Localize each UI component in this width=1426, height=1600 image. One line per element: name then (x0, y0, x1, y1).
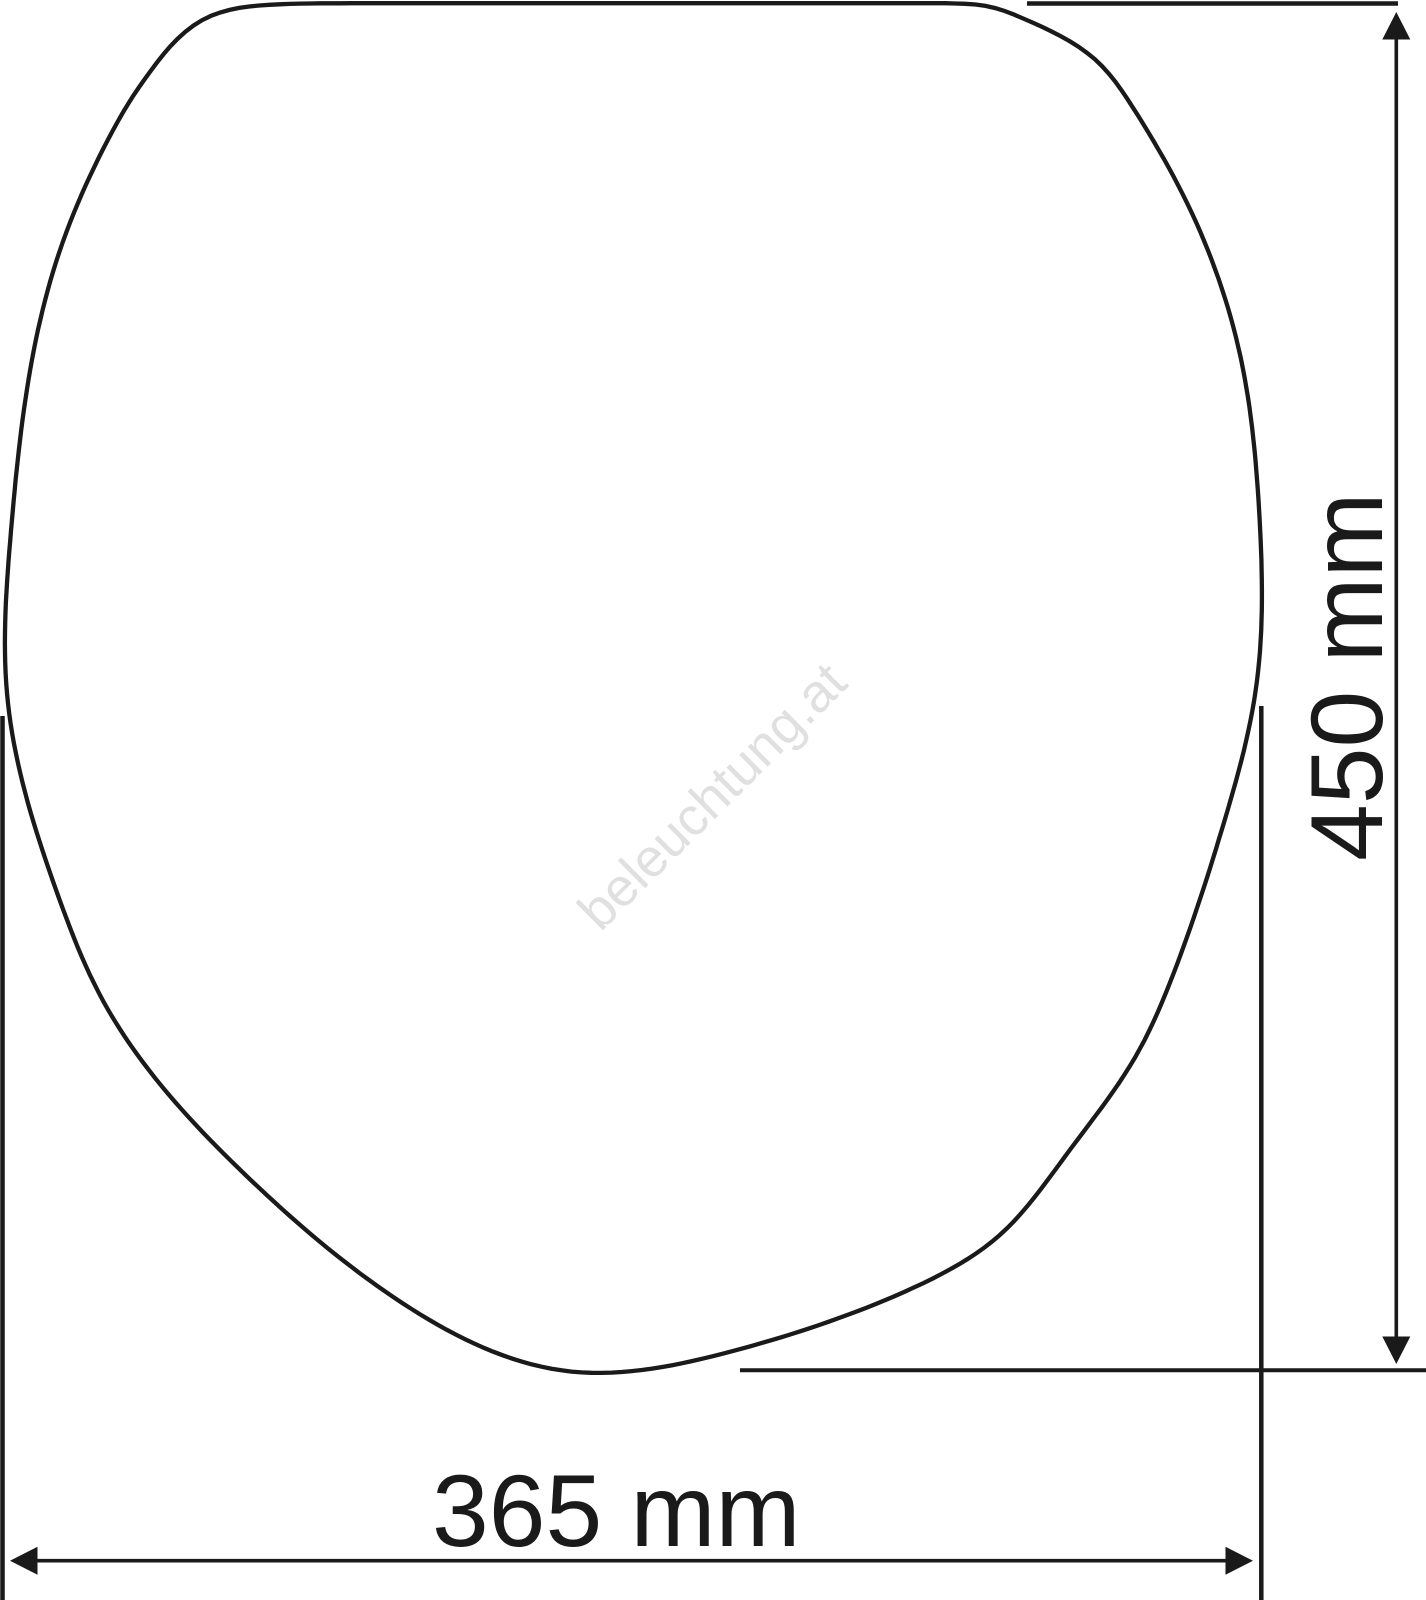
svg-text:beleuchtung.at: beleuchtung.at (567, 652, 858, 941)
svg-text:450 mm: 450 mm (1290, 493, 1404, 861)
svg-text:365 mm: 365 mm (432, 1454, 800, 1568)
